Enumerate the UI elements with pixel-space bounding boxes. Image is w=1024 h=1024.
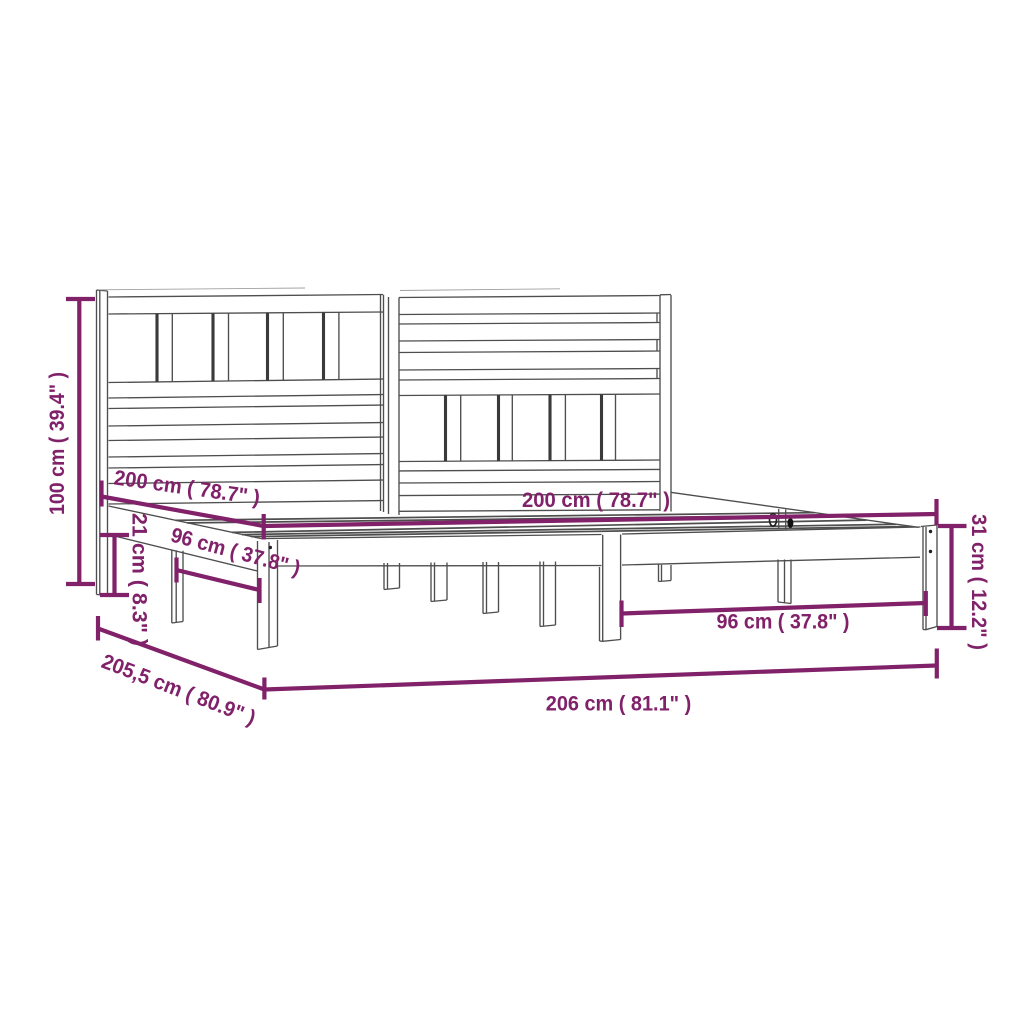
svg-text:200 cm ( 78.7" ): 200 cm ( 78.7" ) (522, 489, 670, 512)
svg-text:206 cm ( 81.1" ): 206 cm ( 81.1" ) (546, 692, 692, 715)
svg-text:31 cm ( 12.2" ): 31 cm ( 12.2" ) (967, 514, 990, 650)
svg-text:100 cm ( 39.4" ): 100 cm ( 39.4" ) (46, 372, 69, 515)
svg-text:21 cm ( 8.3" ): 21 cm ( 8.3" ) (128, 513, 151, 646)
svg-text:96 cm ( 37.8" ): 96 cm ( 37.8" ) (717, 611, 850, 634)
